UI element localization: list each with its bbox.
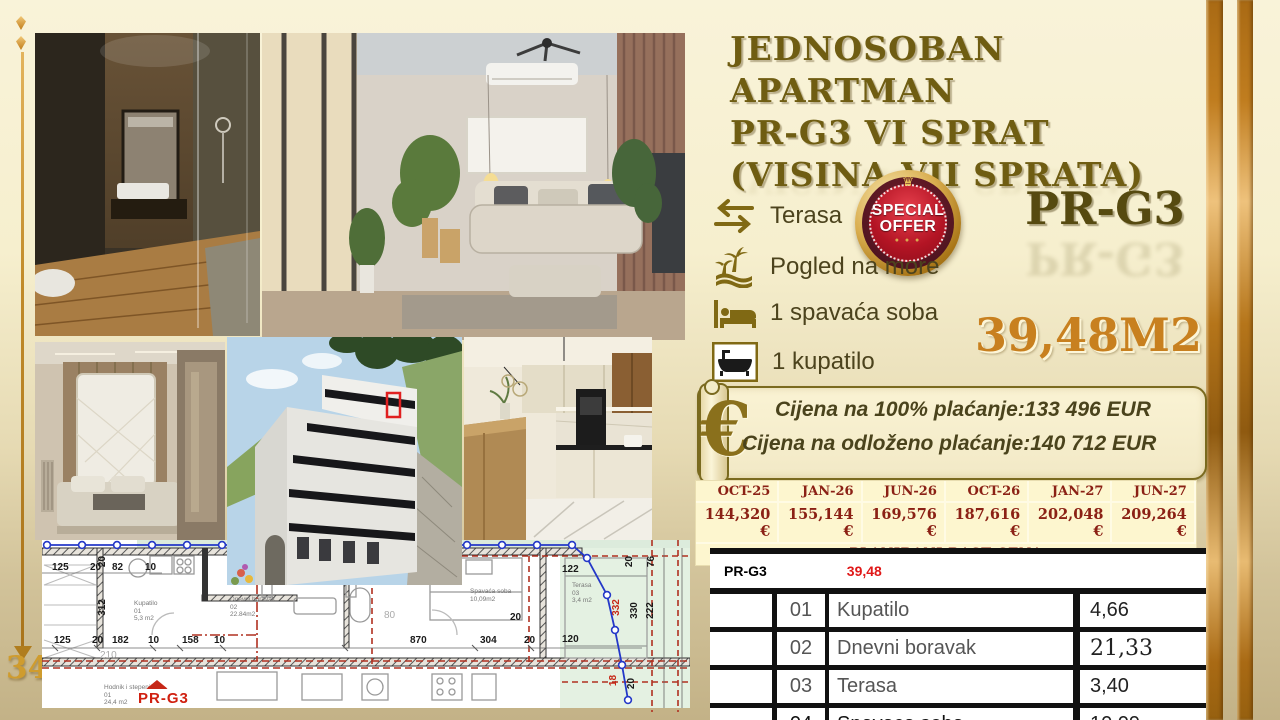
plan-dim: 330 xyxy=(629,602,640,619)
badge-line2: OFFER xyxy=(872,219,945,235)
plan-dim: 120 xyxy=(562,634,579,645)
unit-code: PR-G3 xyxy=(1020,182,1190,235)
bathtub-icon xyxy=(712,342,758,382)
room-table-header: PR-G3 39,48 xyxy=(710,554,1206,594)
plan-unit-arrow-icon xyxy=(146,680,168,689)
amenity-label: 1 kupatilo xyxy=(772,348,875,376)
bed-icon xyxy=(712,296,756,330)
amenity-sea-view: Pogled na more xyxy=(712,246,939,288)
plan-dim: 332 xyxy=(611,599,622,616)
gold-stripe xyxy=(1206,0,1223,720)
gold-stripe xyxy=(1237,0,1253,720)
price-value: 187,616 € xyxy=(946,503,1029,544)
price-value: 155,144 € xyxy=(779,503,862,544)
badge-line1: SPECIAL xyxy=(872,203,945,219)
plan-dim: 20 xyxy=(510,612,521,623)
bathroom-photo xyxy=(35,33,260,336)
price-table-header-row: OCT-25 JAN-26 JUN-26 OCT-26 JAN-27 JUN-2… xyxy=(696,481,1196,503)
room-num: 02 xyxy=(777,632,829,665)
table-row: 03 Terasa 3,40 xyxy=(710,670,1206,708)
plan-dim: 222 xyxy=(645,602,656,619)
plan-dim: 304 xyxy=(480,635,497,646)
diamond-ornament-icon xyxy=(16,16,26,30)
plan-dim: 20 xyxy=(524,635,535,646)
room-area: 10,09 xyxy=(1080,708,1206,720)
plan-dim: 20 xyxy=(626,678,637,689)
sea-view-palms-icon xyxy=(712,246,756,288)
room-name: Kupatilo xyxy=(829,594,1080,627)
price-value: 209,264 € xyxy=(1112,503,1195,544)
price-value: 169,576 € xyxy=(863,503,946,544)
terrace-arrows-icon xyxy=(712,198,756,234)
amenity-label: 1 spavaća soba xyxy=(770,299,938,327)
slide: 34 xyxy=(0,0,1280,720)
diamond-ornament-icon xyxy=(16,36,26,50)
vertical-gold-line xyxy=(21,52,24,648)
living-room-photo xyxy=(262,33,685,340)
room-num: 03 xyxy=(777,670,829,703)
plan-dim: 82 xyxy=(112,562,123,573)
price-col: JUN-27 xyxy=(1112,481,1195,503)
badge-ornament: ● ● ● xyxy=(895,237,922,244)
bedroom-photo xyxy=(35,342,225,540)
plan-dim: 18 xyxy=(608,675,619,686)
room-areas-table: PR-G3 39,48 01 Kupatilo 4,66 02 Dnevni b… xyxy=(710,548,1206,720)
room-table-unit-code: PR-G3 xyxy=(724,563,767,579)
price-col: JAN-27 xyxy=(1029,481,1112,503)
room-num: 01 xyxy=(777,594,829,627)
price-table-value-row: 144,320 € 155,144 € 169,576 € 187,616 € … xyxy=(696,503,1196,544)
plan-dim: 20 xyxy=(624,556,635,567)
room-name: Dnevni boravak xyxy=(829,632,1080,665)
plan-dim: 10 xyxy=(214,635,225,646)
amenity-label: Terasa xyxy=(770,202,842,230)
amenity-terrace: Terasa xyxy=(712,198,842,234)
crown-icon: ♛ xyxy=(902,174,915,188)
plan-dim: 125 xyxy=(52,562,69,573)
room-area: 4,66 xyxy=(1080,594,1206,627)
plan-dim: 80 xyxy=(384,610,395,621)
price-col: OCT-26 xyxy=(946,481,1029,503)
table-row: 01 Kupatilo 4,66 xyxy=(710,594,1206,632)
plan-dim: 10 xyxy=(145,562,156,573)
plan-dim: 182 xyxy=(112,635,129,646)
building-exterior-photo xyxy=(227,337,462,585)
room-area: 3,40 xyxy=(1080,670,1206,703)
plan-dim: 210 xyxy=(100,650,117,661)
price-col: OCT-25 xyxy=(696,481,779,503)
plan-dim: 20 xyxy=(92,635,103,646)
room-num: 04 xyxy=(777,708,829,720)
plan-dim: 20 xyxy=(97,556,108,567)
plan-room-label: Kupatilo 01 5,3 m2 xyxy=(134,600,158,623)
amenity-label: Pogled na more xyxy=(770,253,939,281)
plan-dim: 312 xyxy=(97,599,108,616)
table-row: 02 Dnevni boravak 21,33 xyxy=(710,632,1206,670)
unit-code-reflection: PR-G3 xyxy=(1020,232,1190,285)
plan-room-label: Terasa 03 3,4 m2 xyxy=(572,582,592,605)
plan-dim: 158 xyxy=(182,635,199,646)
plan-room-label: Spavaća soba 10,09m2 xyxy=(470,588,511,603)
plan-dim: 76 xyxy=(646,556,657,567)
price-deferred-payment: Cijena na odloženo plaćanje:140 712 EUR xyxy=(742,432,1156,456)
room-name: Spavaca soba xyxy=(829,708,1080,720)
amenity-bathroom: 1 kupatilo xyxy=(712,342,875,382)
euro-icon: € xyxy=(700,388,752,472)
plan-dim: 125 xyxy=(54,635,71,646)
plan-unit-label: PR-G3 xyxy=(138,690,189,707)
room-table-total-area: 39,48 xyxy=(847,563,882,579)
kitchen-photo xyxy=(464,337,652,540)
price-value: 144,320 € xyxy=(696,503,779,544)
price-col: JUN-26 xyxy=(863,481,946,503)
amenity-bedroom: 1 spavaća soba xyxy=(712,296,938,330)
price-full-payment: Cijena na 100% plaćanje:133 496 EUR xyxy=(775,398,1151,422)
room-area: 21,33 xyxy=(1080,632,1206,665)
price-col: JAN-26 xyxy=(779,481,862,503)
unit-area: 39,48M2 xyxy=(975,308,1200,362)
plan-dim: 870 xyxy=(410,635,427,646)
price-value: 202,048 € xyxy=(1029,503,1112,544)
table-row: 04 Spavaca soba 10,09 xyxy=(710,708,1206,720)
room-name: Terasa xyxy=(829,670,1080,703)
plan-dim: 10 xyxy=(148,635,159,646)
plan-room-label: Dnevni boravak 02 22.84m2 xyxy=(230,596,275,619)
plan-dim: 122 xyxy=(562,564,579,575)
